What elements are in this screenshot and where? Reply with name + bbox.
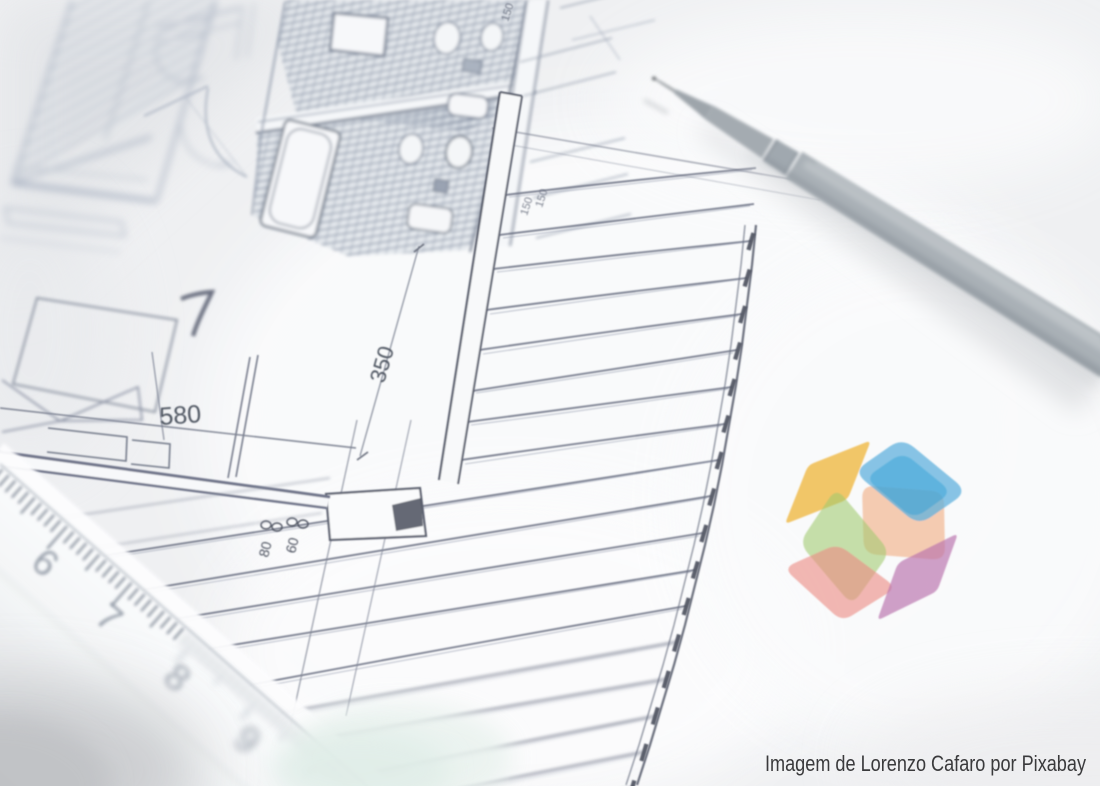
svg-text:Imagem de Lorenzo Cafaro por P: Imagem de Lorenzo Cafaro por Pixabay — [765, 751, 1087, 776]
svg-text:580: 580 — [158, 400, 202, 431]
